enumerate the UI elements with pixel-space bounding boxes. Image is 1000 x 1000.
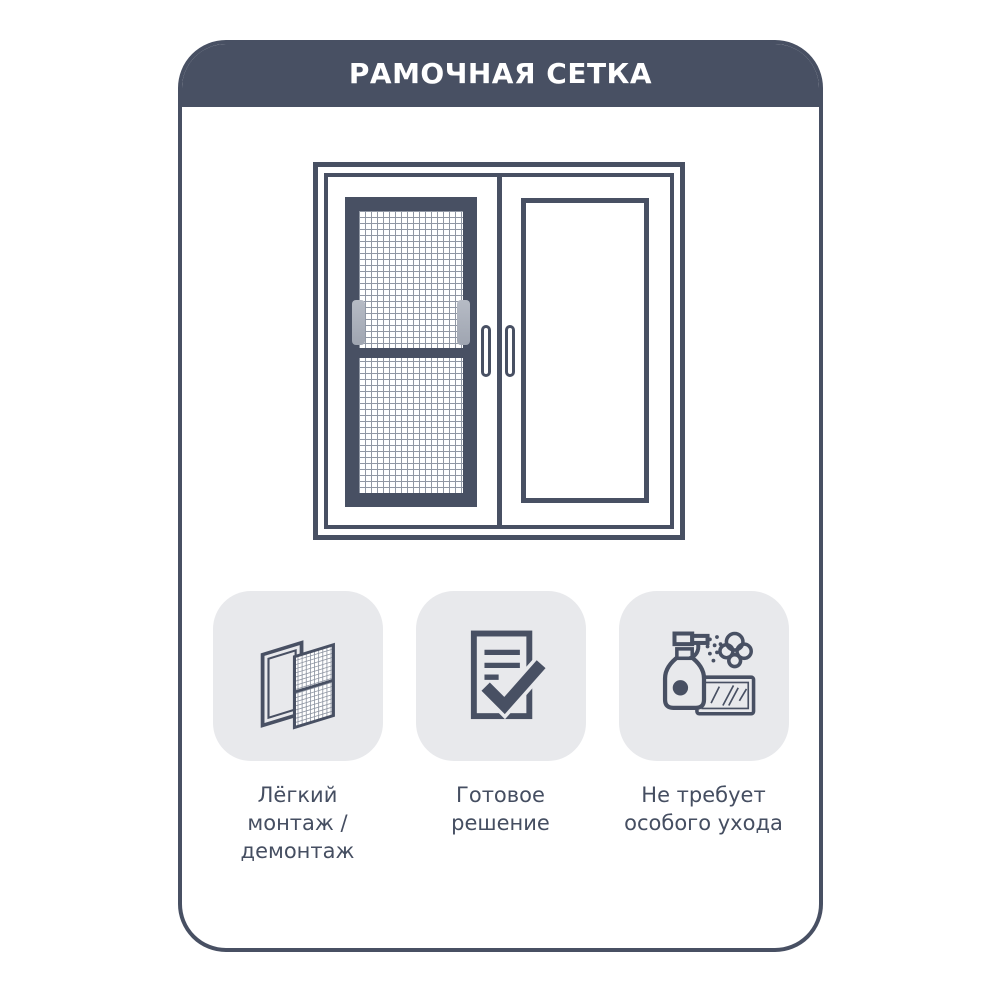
mesh-screen-panel (345, 197, 477, 507)
page-title: РАМОЧНАЯ СЕТКА (349, 57, 652, 90)
card-header: РАМОЧНАЯ СЕТКА (178, 40, 823, 107)
feature-tile (416, 591, 586, 761)
feature-caption: Не требует особого ухода (624, 781, 783, 837)
window-handle-left (481, 325, 491, 377)
bottle-shape (665, 634, 707, 708)
infographic-canvas: РАМОЧНАЯ СЕТКА (0, 0, 1000, 1000)
features-row: Лёгкий монтаж / демонтаж Готовое решение (182, 591, 819, 865)
feature-caption: Готовое решение (451, 781, 550, 837)
feature-tile (619, 591, 789, 761)
product-card: РАМОЧНАЯ СЕТКА (178, 40, 823, 952)
feature-easy-install: Лёгкий монтаж / демонтаж (212, 591, 384, 865)
mist-shape (719, 634, 750, 667)
feature-tile (213, 591, 383, 761)
feature-easy-care: Не требует особого ухода (618, 591, 790, 865)
window-illustration (313, 162, 685, 540)
mesh-crossbar (359, 348, 463, 358)
window-center-divider (497, 177, 502, 525)
document-check-icon (442, 617, 560, 735)
mesh-pull-tab-right (457, 300, 470, 345)
window-glass-pane (521, 198, 649, 503)
mesh-pull-tab-left (352, 300, 365, 345)
mesh-frame-install-icon (239, 617, 357, 735)
window-handle-right (505, 325, 515, 377)
feature-ready-solution: Готовое решение (415, 591, 587, 865)
spray-easy-care-icon (645, 617, 763, 735)
feature-caption: Лёгкий монтаж / демонтаж (212, 781, 384, 865)
